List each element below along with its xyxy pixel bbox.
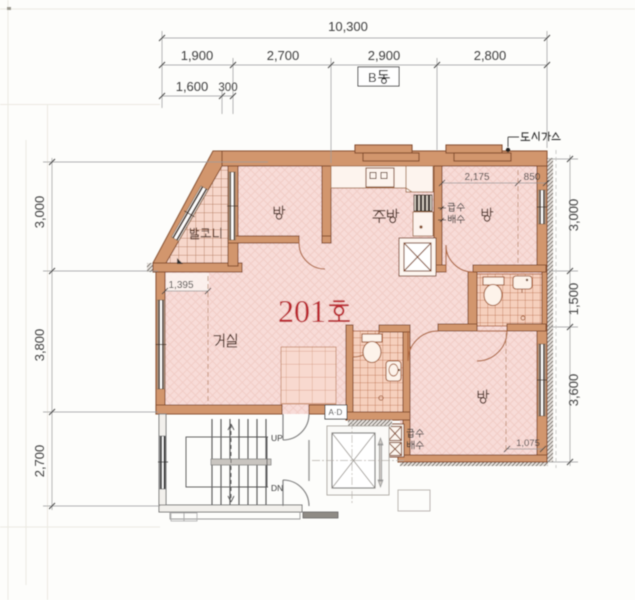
svg-text:2,700: 2,700	[267, 48, 300, 63]
svg-text:3,600: 3,600	[566, 374, 581, 407]
svg-text:10,300: 10,300	[328, 19, 368, 34]
svg-text:300: 300	[218, 82, 237, 94]
svg-text:1,075: 1,075	[516, 438, 540, 449]
svg-text:UP: UP	[271, 433, 283, 443]
svg-text:A·D: A·D	[329, 408, 343, 417]
svg-text:2,800: 2,800	[474, 48, 507, 63]
svg-text:DN: DN	[271, 483, 283, 493]
svg-text:1,600: 1,600	[176, 79, 209, 94]
svg-text:850: 850	[524, 172, 541, 183]
svg-text:3,000: 3,000	[566, 199, 581, 232]
svg-text:2,700: 2,700	[32, 445, 47, 478]
svg-text:1,900: 1,900	[181, 48, 214, 63]
svg-text:2,900: 2,900	[368, 48, 401, 63]
svg-text:3,800: 3,800	[32, 329, 47, 362]
svg-text:B: B	[368, 70, 377, 85]
svg-text:3,000: 3,000	[32, 196, 47, 229]
svg-text:1,395: 1,395	[168, 280, 193, 291]
svg-text:2,175: 2,175	[464, 172, 489, 183]
svg-text:1,500: 1,500	[566, 283, 581, 316]
svg-text:201: 201	[278, 293, 326, 329]
